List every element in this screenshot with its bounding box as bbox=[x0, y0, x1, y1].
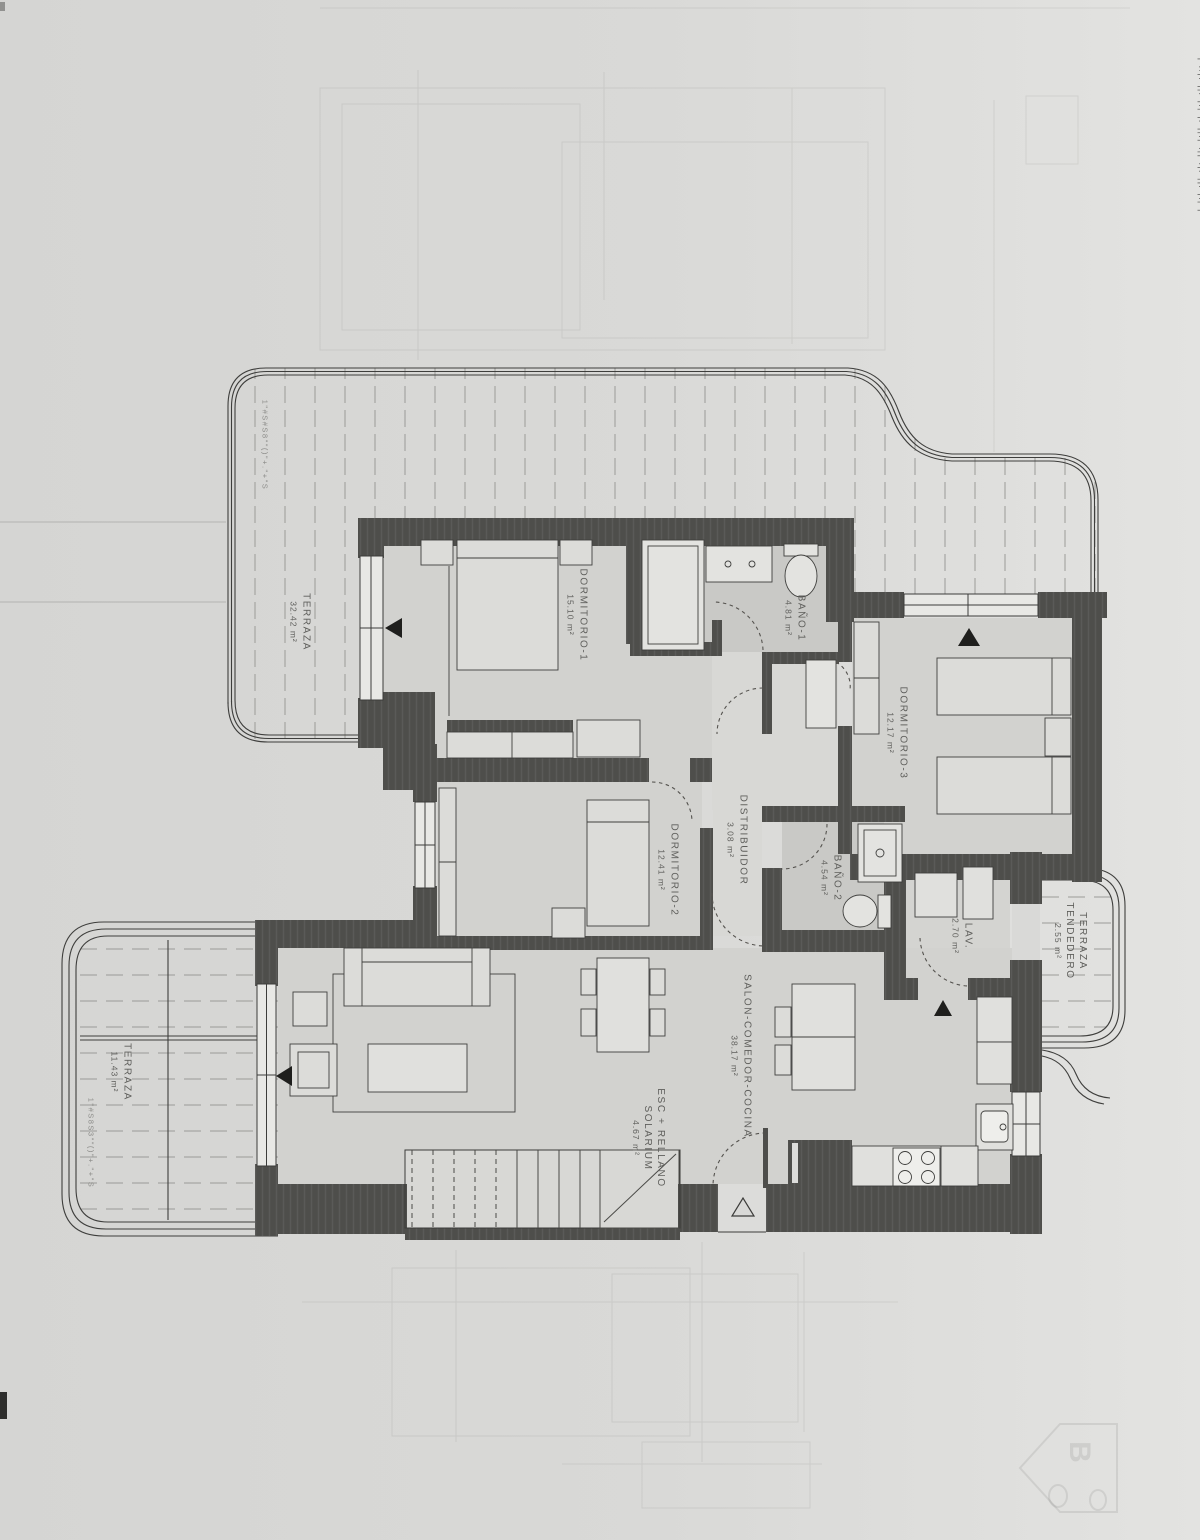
kitchen-island bbox=[792, 984, 855, 1090]
chair bbox=[650, 969, 665, 995]
bed-dormitorio-2 bbox=[587, 800, 649, 926]
wardrobe-dormitorio-3 bbox=[854, 622, 879, 734]
room-label-terraza-tendedero: TERRAZA TENDEDERO 2.55 m² bbox=[1052, 902, 1088, 979]
window-dormitorio-3 bbox=[904, 594, 1038, 616]
chair bbox=[581, 969, 596, 995]
toilet-bano-1 bbox=[784, 544, 818, 597]
side-table bbox=[293, 992, 327, 1026]
door-leaf-dormitorio-3 bbox=[806, 660, 836, 728]
room-label-terraza-main: TERRAZA 32.42 m² bbox=[288, 593, 311, 651]
stool bbox=[775, 1007, 791, 1037]
edge-note-bottom: 1"#S8S3""()"+."+"S bbox=[87, 1098, 96, 1189]
wardrobe-dormitorio-2 bbox=[439, 788, 456, 936]
watermark-logo bbox=[1020, 1424, 1117, 1512]
room-label-dormitorio-3: DORMITORIO-3 12.17 m² bbox=[885, 687, 908, 780]
edge-note-top: 1"#S#S8""()"+."+"S bbox=[261, 400, 270, 491]
room-label-dormitorio-1: DORMITORIO-1 15.10 m² bbox=[565, 569, 588, 662]
tendedero-door-opening bbox=[1012, 904, 1040, 960]
chair bbox=[581, 1009, 596, 1036]
room-label-salon: SALON-COMEDOR-COCINA 38.17 m² bbox=[729, 974, 752, 1138]
nightstand bbox=[552, 908, 585, 938]
room-label-distribuidor: DISTRIBUIDOR 3.08 m² bbox=[725, 795, 748, 886]
nightstand bbox=[421, 540, 453, 565]
bed-dormitorio-3-b bbox=[937, 757, 1071, 814]
stool bbox=[775, 1045, 791, 1075]
room-label-escalera: ESC + RELLANO SOLARIUM 4.67 m² bbox=[630, 1088, 666, 1187]
kitchen-wall-slit bbox=[792, 1143, 798, 1183]
sofa bbox=[344, 948, 490, 1006]
toilet-bano-2 bbox=[843, 895, 891, 928]
clipped-right-edge-text: ¦·l!¦i·¦|l·¦i|·¦l·¦|i¦·l|¦·i¦l·|¦i·¦l|·¦ bbox=[1192, 58, 1200, 248]
washer bbox=[963, 867, 993, 919]
terrace-lower bbox=[62, 922, 278, 1236]
entrance-door-leaf bbox=[763, 1128, 768, 1188]
window-kitchen bbox=[1012, 1092, 1040, 1156]
shower-bano-1 bbox=[642, 540, 704, 650]
sink-bano-2 bbox=[858, 824, 902, 882]
dining-table bbox=[597, 958, 649, 1052]
floorplan-page: TERRAZA 32.42 m² DORMITORIO-1 15.10 m² B… bbox=[0, 0, 1200, 1540]
sink-bano-1 bbox=[706, 546, 772, 582]
faint-extension-lines bbox=[0, 522, 226, 602]
room-label-dormitorio-2: DORMITORIO-2 12.41 m² bbox=[656, 824, 679, 917]
window-dormitorio-2 bbox=[415, 802, 435, 888]
room-label-bano-2: BAÑO-2 4.54 m² bbox=[819, 855, 842, 902]
coffee-table bbox=[368, 1044, 467, 1092]
room-label-lavadero: LAV. 2.70 m² bbox=[950, 918, 973, 954]
window-salon bbox=[257, 984, 276, 1166]
bed-dormitorio-1 bbox=[457, 540, 558, 670]
kitchen-sink bbox=[976, 1104, 1013, 1150]
window-dormitorio-1 bbox=[360, 556, 383, 700]
floorplan-drawing bbox=[0, 0, 1200, 1540]
washer bbox=[915, 873, 957, 917]
scan-corner-speck bbox=[0, 2, 5, 11]
room-label-bano-1: BAÑO-1 4.81 m² bbox=[783, 595, 806, 642]
armchair bbox=[290, 1044, 337, 1096]
kitchen-cabinet bbox=[977, 997, 1012, 1042]
nightstand bbox=[560, 540, 592, 565]
bed-dormitorio-3-a bbox=[937, 658, 1071, 715]
stove bbox=[893, 1148, 940, 1186]
watermark-letter: B bbox=[1062, 1441, 1096, 1463]
nightstand bbox=[1045, 718, 1071, 756]
kitchen-cabinet bbox=[977, 1042, 1012, 1084]
chair bbox=[650, 1009, 665, 1036]
scan-edge-mark bbox=[0, 1392, 7, 1419]
room-label-terraza-lower: TERRAZA 11.43 m² bbox=[109, 1043, 132, 1101]
